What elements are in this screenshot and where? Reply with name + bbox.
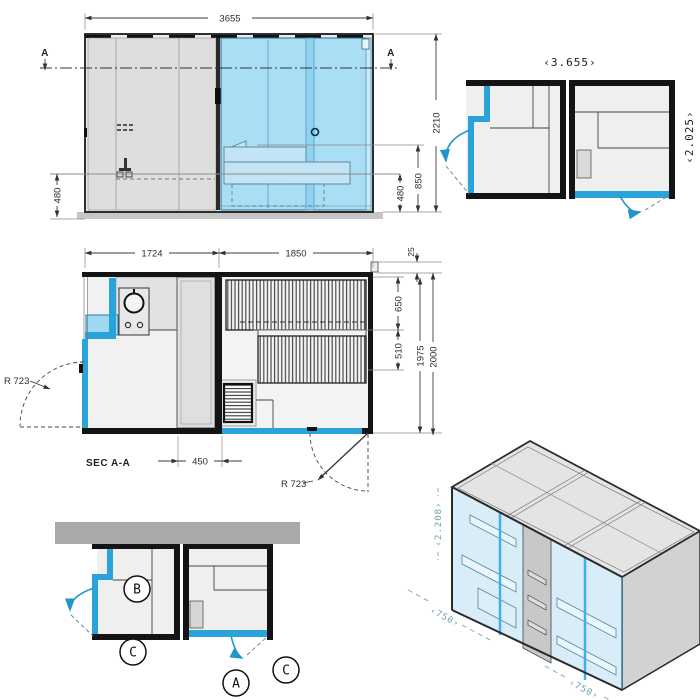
dim-length-bracket-label: ‹3.655› [543,56,596,69]
dim-1850-label: 1850 [285,249,306,260]
glass-door-left [82,339,88,428]
dim-510-label: 510 [394,343,405,359]
top-plan: ‹3.655› ‹2.025› [446,56,696,212]
cad-drawing: A A 3655 2210 850 480 480 ‹3.655› ‹2.025… [0,0,700,700]
section-label: SEC A-A [86,458,130,469]
wardrobe-column [177,277,215,428]
door-swing-arrow [231,636,242,658]
dim-850-label: 850 [414,173,425,189]
top-plan-left-room [446,80,566,199]
glass-wall-bottom [189,630,267,637]
front-elevation: A A 3655 2210 850 480 480 [40,12,443,219]
door-swing-left: R 723 [4,362,84,427]
iso-door-right-label: ‹750› [567,678,600,700]
iso-height-label: ‹2.208› [434,502,444,547]
door-swing-arrow [70,588,94,610]
dim-height-label: 2210 [432,112,443,133]
existing-wall [55,522,300,544]
dim-1724-label: 1724 [141,249,162,260]
heater-block [190,601,203,628]
dim-25-label: 25 [406,247,416,257]
section-marker-a-left: A [41,48,49,59]
washbasin-unit [119,288,149,335]
radius-left-label: R 723 [4,376,29,387]
center-divider [216,38,220,210]
roof-lip [371,262,378,272]
glass-wall-bottom [575,191,669,198]
glass-door-front [222,428,362,434]
dim-1975-label: 1975 [416,345,427,366]
top-plan-right-room [569,80,675,212]
control-panel [215,88,221,104]
door-swing-right: R 723 [281,433,368,492]
isometric-view: ‹2.208› ‹750› ‹750› [408,441,700,700]
left-panel-wall [84,38,216,210]
marker-c-left: C [129,646,137,661]
detail-plan: B C A C [55,522,300,696]
glass-wall [221,38,371,210]
hinge-mark [362,39,369,49]
dim-480-right-label: 480 [396,186,407,202]
sauna-heater [224,384,252,422]
dim-width-label: 3655 [219,14,240,25]
plinth [77,212,383,219]
dim-depth-bracket-label: ‹2.025› [683,110,696,163]
iso-partition [523,524,551,663]
floor-plan: R 723 R 723 1724 1850 25 650 510 [4,247,442,492]
marker-b: B [133,583,141,598]
dim-480-left-label: 480 [53,188,64,204]
detail-right-room [183,544,273,658]
heater-block [577,150,591,178]
marker-c-right: C [282,664,290,679]
door-swing-arrow [620,196,640,212]
dim-2000-label: 2000 [429,346,440,367]
marker-a: A [232,677,240,692]
door-handle-mark [307,427,317,431]
dim-450-label: 450 [192,457,208,468]
lower-bench [258,336,366,383]
door-handle-mark [79,364,83,373]
upper-bench [226,280,366,330]
dim-650-label: 650 [394,296,405,312]
door-handle-mark [84,128,87,137]
section-marker-a-right: A [387,48,395,59]
radius-right-label: R 723 [281,479,306,490]
